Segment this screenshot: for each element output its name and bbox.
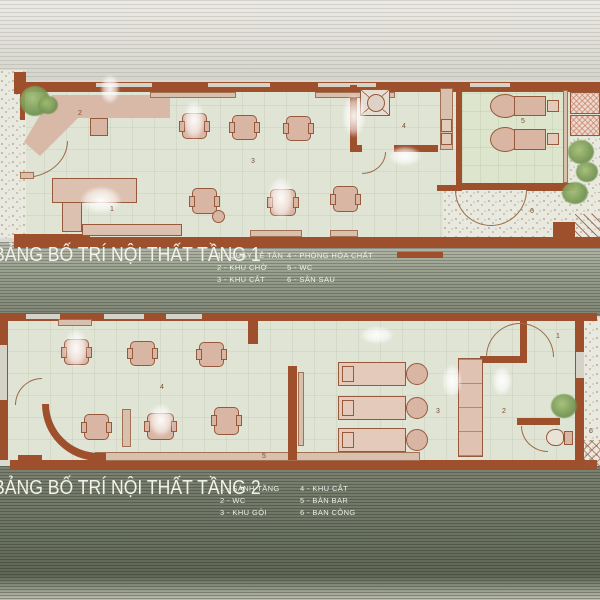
sink — [441, 119, 452, 132]
wash-bed-pillow — [547, 133, 559, 145]
background-top — [0, 0, 600, 80]
wall-right — [575, 318, 584, 460]
toilet — [546, 429, 564, 446]
styling-chair — [286, 116, 311, 141]
room-label-bar: 5 — [262, 453, 266, 460]
room-label-backyard: 6 — [530, 208, 534, 215]
window — [208, 83, 270, 87]
styling-chair — [84, 414, 109, 440]
wall-backyard — [437, 185, 457, 191]
window — [470, 83, 510, 87]
room-label-cutting: 4 — [160, 384, 164, 391]
stool — [212, 210, 225, 223]
mirror-ledge — [250, 230, 302, 237]
legend-item: 1 - SẢNH TẦNG — [220, 483, 280, 495]
room-label-balcony: 6 — [589, 428, 593, 435]
wash-bed-body — [514, 96, 546, 116]
wall-stub — [248, 318, 258, 344]
legend-item: 4 - KHU CẮT — [300, 483, 356, 495]
shampoo-pillow — [342, 400, 354, 416]
floor-plan-poster: 2 1 3 4 5 6 BẢNG BỐ TRÍ NỘI THẤT TẦNG 1 … — [0, 0, 600, 600]
wash-bed-body — [514, 129, 546, 150]
plant — [551, 394, 577, 418]
room-label-wc: 5 — [521, 118, 525, 125]
mirror-ledge — [298, 372, 304, 446]
window — [318, 83, 376, 87]
person-figure — [442, 364, 462, 398]
legend-item: 1 - QUẦY LỄ TÂN — [217, 250, 283, 262]
cabinet — [570, 115, 600, 136]
wall-wc-bottom — [517, 418, 560, 425]
wall-room4-bottom — [350, 145, 362, 152]
legend-item: 5 - BÀN BAR — [300, 495, 356, 507]
styling-chair — [232, 115, 257, 140]
wall-bottom — [10, 460, 597, 470]
mirror-ledge — [150, 92, 236, 98]
floor2-legend-col1: 1 - SẢNH TẦNG 2 - WC 3 - KHU GỘI — [220, 483, 280, 519]
room-label-washing: 3 — [436, 408, 440, 415]
mirror-ledge — [330, 230, 358, 237]
stair-hatch — [575, 214, 600, 240]
styling-chair — [130, 341, 155, 366]
legend-item: 5 - WC — [287, 262, 373, 274]
shampoo-basin — [406, 429, 428, 451]
mirror-console — [58, 319, 92, 326]
bar-counter — [95, 452, 420, 461]
wall-block — [553, 222, 575, 240]
legend-item: 3 - KHU GỘI — [220, 507, 280, 519]
side-ledge — [563, 90, 568, 183]
styling-chair — [214, 407, 239, 435]
reception-counter — [82, 224, 182, 236]
person-figure — [183, 100, 205, 140]
room-label-chemical: 4 — [402, 123, 406, 130]
person-figure — [492, 366, 512, 396]
reception-desk — [62, 202, 82, 232]
person-figure — [100, 74, 120, 104]
window — [104, 314, 144, 319]
window — [26, 314, 60, 319]
styling-chair — [333, 186, 358, 212]
legend-item: 6 - SÂN SAU — [287, 274, 373, 286]
floor2-legend-col2: 4 - KHU CẮT 5 - BÀN BAR 6 - BAN CÔNG — [300, 483, 356, 519]
plant — [576, 162, 598, 182]
plant — [568, 140, 594, 164]
room-label-reception: 1 — [110, 206, 114, 213]
shampoo-pillow — [342, 432, 354, 448]
shampoo-basin — [406, 397, 428, 419]
person-figure — [64, 328, 88, 368]
window — [0, 345, 7, 400]
person-figure — [268, 176, 294, 220]
balcony-hatch — [584, 440, 600, 468]
person-figure — [80, 186, 122, 214]
balcony-door — [576, 352, 584, 378]
person-figure — [342, 94, 366, 138]
legend-item: 3 - KHU CẮT — [217, 274, 283, 286]
room-label-waiting: 2 — [78, 110, 82, 117]
person-figure — [360, 326, 394, 344]
room-label-lobby: 1 — [556, 333, 560, 340]
shampoo-basin — [406, 363, 428, 385]
waiting-table — [90, 118, 108, 136]
legend-item: 2 - KHU CHỜ — [217, 262, 283, 274]
floor1-legend-col1: 1 - QUẦY LỄ TÂN 2 - KHU CHỜ 3 - KHU CẮT — [217, 250, 283, 286]
wall-partition — [288, 366, 297, 460]
legend-item: 6 - BAN CÔNG — [300, 507, 356, 519]
styling-chair — [192, 188, 217, 214]
plant — [562, 182, 588, 204]
person-figure — [148, 403, 174, 437]
sink — [441, 133, 452, 145]
wash-bed-pillow — [547, 100, 559, 112]
window — [166, 314, 202, 319]
wall-room5-left — [456, 85, 462, 191]
room-label-cutting: 3 — [251, 158, 255, 165]
legend-item: 2 - WC — [220, 495, 280, 507]
wall-block — [18, 455, 42, 470]
room-label-wc: 2 — [502, 408, 506, 415]
mirror-stand — [122, 409, 131, 447]
floor1-legend-col2: 4 - PHÒNG HÓA CHẤT 5 - WC 6 - SÂN SAU — [287, 250, 373, 286]
person-figure — [388, 146, 422, 166]
shampoo-pillow — [342, 366, 354, 382]
entrance-door-leaf — [20, 172, 34, 179]
storage-cabinet — [458, 358, 483, 457]
divider-bar — [397, 252, 443, 258]
cabinet — [570, 92, 600, 114]
plant — [38, 96, 58, 114]
legend-item: 4 - PHÒNG HÓA CHẤT — [287, 250, 373, 262]
styling-chair — [199, 342, 224, 367]
toilet-tank — [564, 431, 573, 445]
